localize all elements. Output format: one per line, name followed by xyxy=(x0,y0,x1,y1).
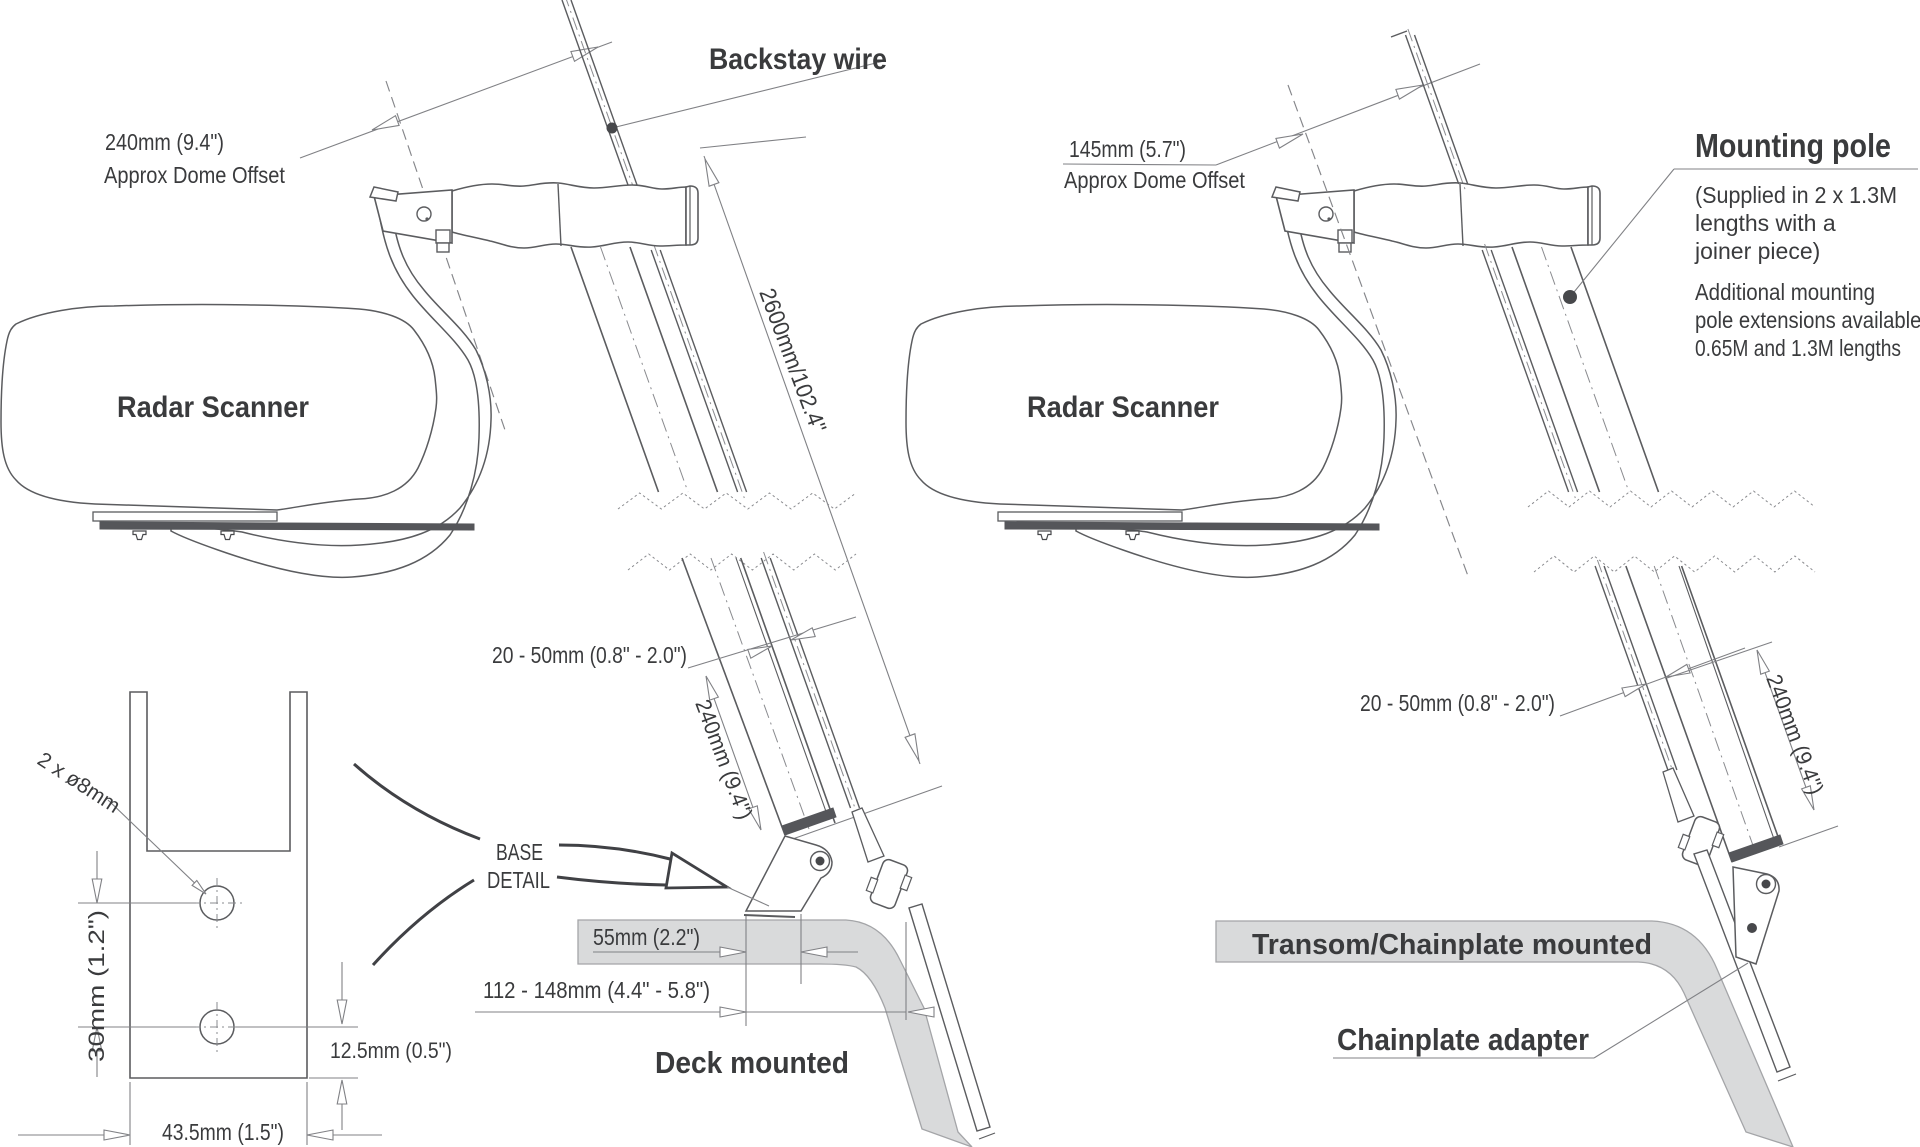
svg-text:30mm (1.2"): 30mm (1.2") xyxy=(84,910,109,1062)
svg-text:DETAIL: DETAIL xyxy=(487,867,550,893)
svg-text:Backstay wire: Backstay wire xyxy=(709,43,887,76)
svg-text:Transom/Chainplate mounted: Transom/Chainplate mounted xyxy=(1252,929,1652,961)
svg-text:0.65M and 1.3M lengths: 0.65M and 1.3M lengths xyxy=(1695,335,1901,361)
svg-text:Deck mounted: Deck mounted xyxy=(655,1045,849,1080)
svg-text:Radar Scanner: Radar Scanner xyxy=(117,391,309,424)
svg-text:240mm (9.4"): 240mm (9.4") xyxy=(690,696,758,823)
svg-text:joiner piece): joiner piece) xyxy=(1694,238,1820,264)
svg-text:240mm (9.4"): 240mm (9.4") xyxy=(1761,671,1829,798)
svg-text:2600mm/102.4": 2600mm/102.4" xyxy=(754,285,832,436)
svg-text:(Supplied in 2 x 1.3M: (Supplied in 2 x 1.3M xyxy=(1695,182,1897,208)
svg-text:Chainplate adapter: Chainplate adapter xyxy=(1337,1022,1589,1057)
svg-text:Approx Dome Offset: Approx Dome Offset xyxy=(1064,167,1246,193)
svg-text:BASE: BASE xyxy=(496,839,543,865)
svg-text:pole extensions available:: pole extensions available: xyxy=(1695,307,1920,333)
svg-text:145mm (5.7"): 145mm (5.7") xyxy=(1069,136,1186,162)
svg-text:55mm (2.2"): 55mm (2.2") xyxy=(593,924,700,950)
svg-text:2 x ø8mm: 2 x ø8mm xyxy=(33,748,124,818)
svg-text:Approx Dome Offset: Approx Dome Offset xyxy=(104,162,286,188)
svg-text:Radar Scanner: Radar Scanner xyxy=(1027,391,1219,424)
svg-text:20 - 50mm (0.8" - 2.0"): 20 - 50mm (0.8" - 2.0") xyxy=(1360,690,1555,716)
svg-text:240mm (9.4"): 240mm (9.4") xyxy=(105,129,224,155)
svg-text:Mounting pole: Mounting pole xyxy=(1695,127,1891,164)
svg-text:Additional mounting: Additional mounting xyxy=(1695,279,1875,305)
svg-text:lengths with a: lengths with a xyxy=(1695,210,1836,236)
svg-text:43.5mm (1.5"): 43.5mm (1.5") xyxy=(162,1119,284,1145)
svg-text:12.5mm (0.5"): 12.5mm (0.5") xyxy=(330,1038,452,1063)
svg-text:20 - 50mm (0.8" - 2.0"): 20 - 50mm (0.8" - 2.0") xyxy=(492,642,687,668)
svg-text:112 - 148mm (4.4" - 5.8"): 112 - 148mm (4.4" - 5.8") xyxy=(483,977,710,1003)
